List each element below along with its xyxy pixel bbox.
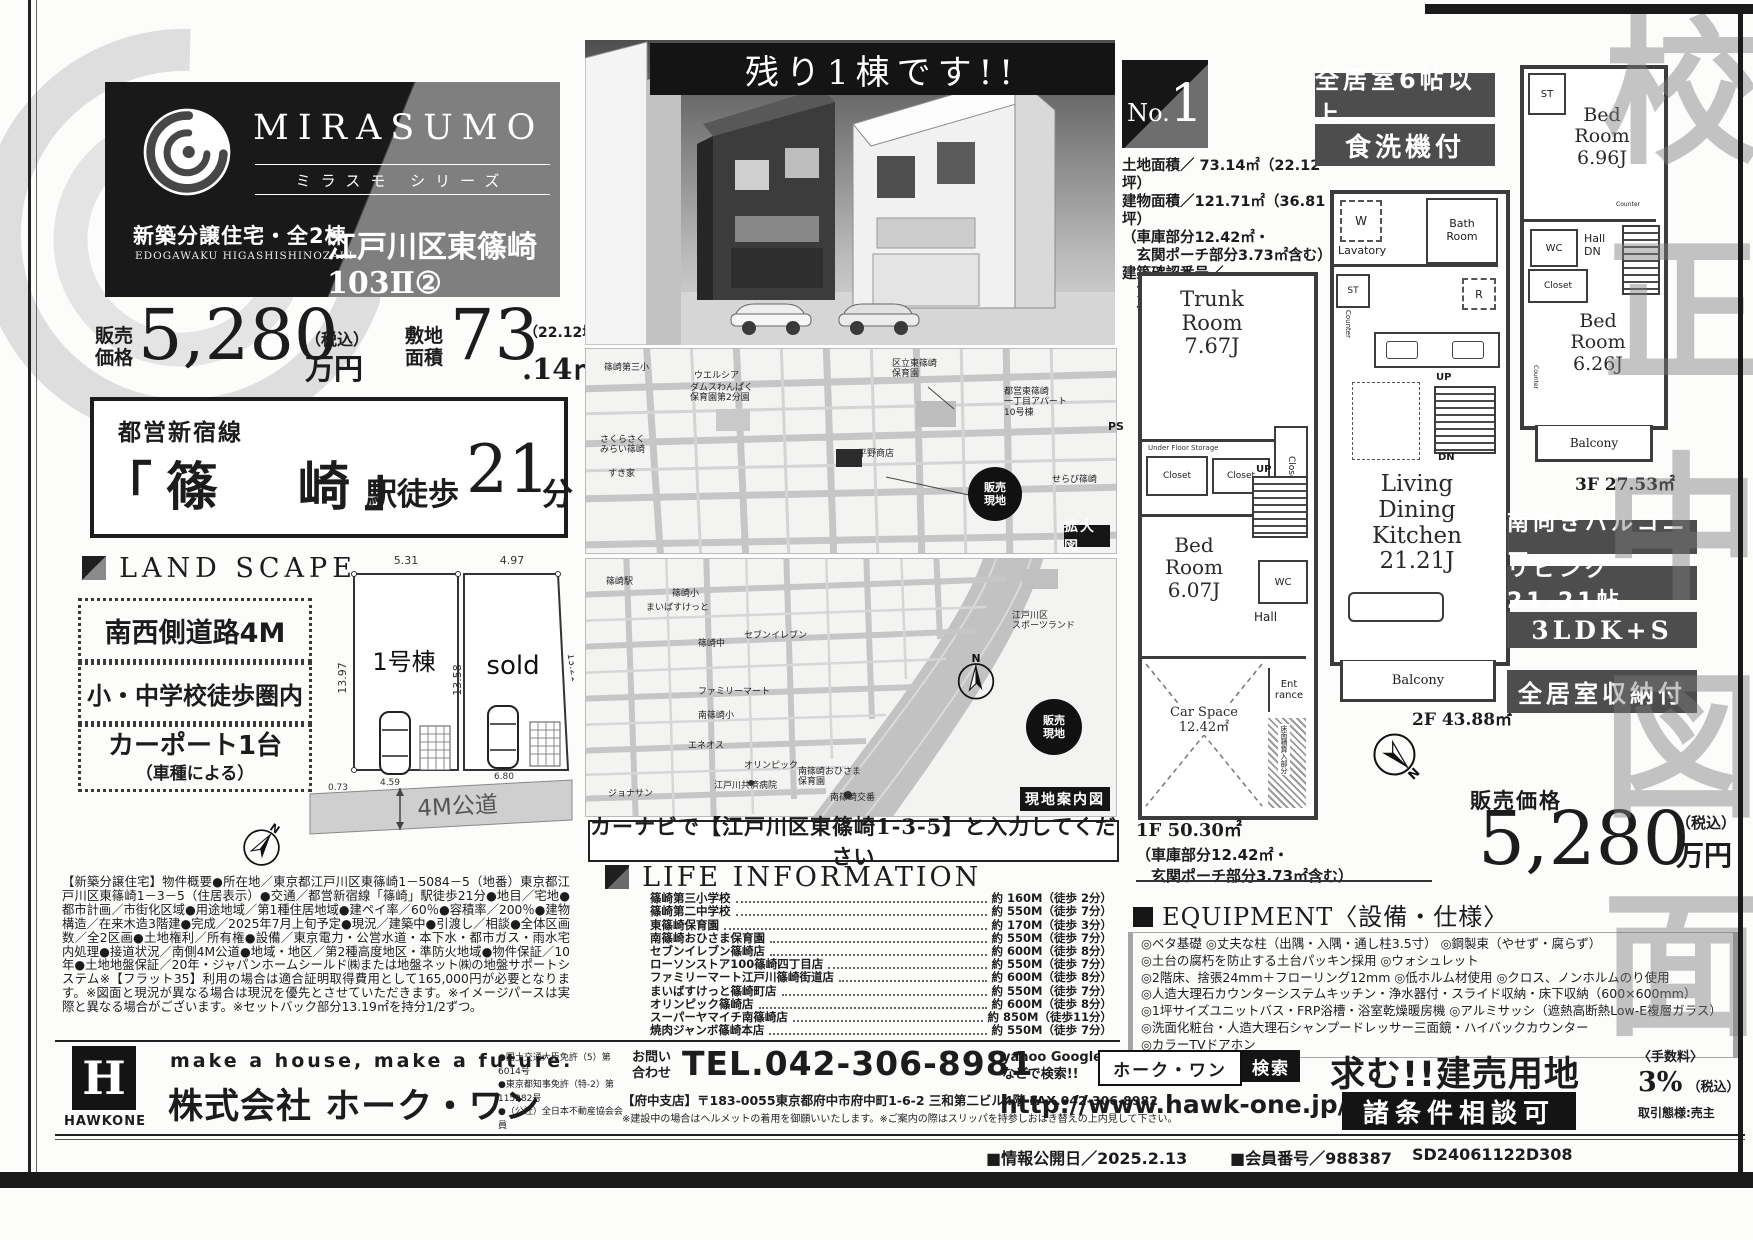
floor-plan-1f: Trunk Room 7.67J Under Floor Storage Clo… — [1138, 272, 1318, 820]
road-label: 4M公道 — [417, 792, 499, 822]
porch-hatch-2 — [530, 722, 560, 766]
compass-landscape: N — [228, 808, 300, 880]
label-hall-1f: Hall — [1254, 610, 1277, 624]
dotted-leader — [770, 941, 987, 943]
footer-tel: TEL.042-306-8981 — [682, 1044, 1034, 1083]
badge-storage: 全居室収納付 — [1507, 670, 1697, 713]
station-unit: 分 — [542, 469, 573, 514]
wc-1f: WC — [1258, 560, 1308, 604]
plot-dim-b3: 6.80 — [494, 772, 514, 782]
kitchen-stove — [1452, 341, 1484, 359]
feature-carport-label: カーポート1台 — [108, 733, 282, 759]
label-1f-area: 1F 50.30㎡ — [1136, 816, 1353, 842]
map-guide-label: 篠崎小 — [672, 589, 699, 599]
stairs-3f — [1622, 225, 1660, 295]
brand-panel: MIRASUMO ミラスモ シリーズ 新築分譲住宅・全2棟 EDOGAWAKU … — [105, 82, 560, 297]
map-guide-label: セブンイレブン — [744, 631, 807, 641]
page-edge-bottom — [0, 1172, 1753, 1188]
feature-carport-note: （車種による） — [136, 759, 255, 784]
dotted-leader — [839, 980, 987, 982]
divider-equipment — [1136, 880, 1432, 882]
feature-box-carport: カーポート1台 （車種による） — [78, 724, 312, 792]
page-edge-top-right — [1425, 4, 1753, 14]
floor-plan-2f: W Lavatory Bath Room ST Counter R UP DN … — [1330, 190, 1510, 666]
map-zoom-streets — [586, 349, 1116, 553]
lot2-label: sold — [486, 651, 539, 681]
wall — [1334, 264, 1498, 267]
life-title: LIFE INFORMATION — [642, 862, 981, 893]
map-zoom-label: 都営東篠崎 一丁目アパート 10号棟 — [1004, 387, 1067, 418]
fee-value-row: 3% （税込） — [1638, 1067, 1748, 1098]
plot-dim-right: 13.21 — [565, 653, 574, 683]
fridge-box: R — [1462, 278, 1496, 310]
page-edge-left-2 — [36, 0, 37, 1186]
station-minutes: 21 — [466, 437, 550, 503]
footer-contact-label: お問い 合わせ — [632, 1050, 671, 1083]
search-input-box: ホーク・ワン — [1098, 1050, 1242, 1086]
spec-line: 建物面積／121.71㎡（36.81坪） — [1122, 194, 1332, 230]
sale-price-unit: 万円 — [1676, 834, 1732, 874]
map-zoom-label: さくらさく みらい篠崎 — [600, 435, 645, 456]
license-line: ●東京都知事免許（特-2）第115282号 — [498, 1079, 628, 1106]
page-edge-left-1 — [28, 0, 31, 1186]
lot1-label: 1号棟 — [372, 648, 435, 676]
brand-rule-bottom — [255, 194, 550, 195]
sale-price-value: 5,280 — [1478, 802, 1690, 876]
map-guide: 篠崎駅 篠崎小 まいばすけっと 篠崎中 セブンイレブン ファミリーマート 南篠崎… — [585, 558, 1117, 817]
plot-dim-left: 13.97 — [336, 662, 349, 694]
label-counter-2f: Counter — [1344, 310, 1352, 338]
map-guide-label: まいばすけっと — [646, 603, 709, 613]
dotted-leader — [736, 914, 987, 916]
badge-3ldks: 3LDK+S — [1507, 612, 1697, 648]
dotted-leader — [769, 1033, 986, 1035]
kitchen-sink — [1386, 341, 1418, 359]
label-under-floor-storage: Under Floor Storage — [1148, 444, 1218, 452]
equipment-title: EQUIPMENT〈設備・仕様〉 — [1162, 903, 1508, 931]
map-guide-label: 江戸川共済病院 — [714, 781, 777, 791]
consult-badge: 諸条件相談可 — [1342, 1092, 1576, 1130]
map-zoom-label: 区立東篠崎 保育園 — [892, 359, 937, 380]
badge-living-size: リビング21.21帖 — [1507, 566, 1697, 600]
map-guide-label: 南篠崎小 — [698, 711, 734, 721]
label-lavatory: Lavatory — [1338, 244, 1386, 257]
room-car-space: Car Space 12.42㎡ — [1144, 706, 1264, 735]
svg-text:N: N — [971, 652, 980, 665]
equipment-item: ◎人造大理石カウンターシステムキッチン・浄水器付・スライド収納・床下収納（600… — [1141, 986, 1725, 1003]
search-button: 検索 — [1242, 1050, 1300, 1082]
map-zoom-label: 平野商店 — [858, 449, 894, 459]
feature-box-road: 南西側道路4M — [78, 598, 312, 662]
license-line: ●国土交通大臣免許（5）第6014号 — [498, 1052, 628, 1079]
station-walk: 駅徒歩 — [366, 469, 459, 514]
plot-dim-top1: 5.31 — [394, 554, 419, 567]
map-guide-site-mark: 販売 現地 — [1026, 699, 1082, 755]
bottom-rule-2 — [55, 1139, 1745, 1140]
room-entrance: Ent rance — [1268, 668, 1308, 712]
feature-box-school: 小・中学校徒歩圏内 — [78, 662, 312, 724]
room-bed2-3f: Bed Room 6.26J — [1546, 311, 1650, 375]
map-guide-label: 江戸川区 スポーツランド — [1012, 611, 1075, 632]
badge-dishwasher: 食洗機付 — [1315, 124, 1495, 166]
kitchen-counter — [1374, 332, 1500, 368]
brand-name: MIRASUMO — [253, 108, 553, 148]
map-guide-label: 篠崎中 — [698, 639, 725, 649]
compass-map: N — [954, 651, 998, 703]
life-item-name: 焼肉ジャンボ篠崎本店 — [650, 1022, 764, 1038]
dining-table — [1352, 382, 1420, 460]
car-top-view-2 — [488, 706, 518, 768]
fee-block: 〈手数料〉 3% （税込） 取引態様:売主 — [1638, 1046, 1748, 1121]
footer-company: 株式会社 ホーク・ワン — [168, 1078, 541, 1129]
balcony-2f: Balcony — [1340, 660, 1496, 702]
map-zoom-label: すき家 — [608, 469, 635, 479]
equipment-item: ◎1坪サイズユニットバス・FRP浴槽・浴室乾燥暖房機 ◎アルミサッシ（遮熱高断熱… — [1141, 1003, 1725, 1020]
plot-dim-mid: 13.58 — [451, 664, 464, 696]
equipment-item: ◎土台の腐朽を防止する土台パッキン採用 ◎ウォシュレット — [1141, 953, 1725, 970]
license-line: ●（公社）全日本不動産協会会員 — [498, 1106, 628, 1133]
map-zoom-label: 篠崎第三小 — [604, 363, 649, 373]
plot-dim-b2: 4.59 — [380, 778, 400, 788]
wall — [1524, 219, 1656, 222]
label-ps: PS — [1108, 420, 1124, 433]
map-guide-label: エネオス — [688, 741, 724, 751]
site-label: 敷地 面積 — [405, 326, 443, 370]
unit-number: No.1 — [1127, 74, 1203, 134]
balcony-3f: Balcony — [1535, 425, 1653, 462]
spec-line: （車庫部分12.42㎡・ — [1122, 230, 1332, 248]
map-guide-label: 南篠崎おひさま 保育園 — [798, 767, 861, 788]
svg-text:N: N — [267, 821, 282, 837]
unit-number-badge: No.1 — [1122, 60, 1208, 148]
badge-all-rooms-6j: 全居室6帖以上 — [1315, 73, 1495, 117]
dotted-leader — [736, 901, 987, 903]
floor1-area-block: 1F 50.30㎡ （車庫部分12.42㎡・ 玄関ポーチ部分3.73㎡含む） — [1136, 816, 1353, 886]
section-square-icon — [82, 556, 106, 580]
plot-diagram: 4M公道 5.31 4.97 13.97 13.58 13.21 1号棟 sol… — [308, 548, 574, 844]
label-3f-area: 3F 27.53㎡ — [1575, 470, 1675, 495]
map-zoom-label: せらび篠崎 — [1052, 475, 1097, 485]
sale-price-tax: （税込） — [1676, 812, 1736, 833]
equipment-box: ◎ベタ基礎 ◎丈夫な柱（出隅・入隅・通し柱3.5寸） ◎鋼製束（やせず・腐らず）… — [1128, 932, 1738, 1058]
map-zoom-label: ウエルシア — [694, 371, 739, 381]
washer-box: W — [1340, 200, 1382, 242]
sofa — [1348, 592, 1444, 622]
stairs-1f — [1252, 476, 1308, 538]
price-unit: 万円 — [305, 346, 363, 388]
dotted-leader — [782, 994, 987, 996]
closet-1: Closet — [1146, 456, 1208, 496]
footer-url: http://www.hawk-one.jp/ — [1000, 1090, 1347, 1119]
room-bed1-3f: Bed Room 6.96J — [1550, 105, 1654, 169]
life-header: LIFE INFORMATION — [605, 862, 981, 893]
feature-road-label: 南西側道路4M — [105, 611, 286, 650]
hawkone-logo: H — [72, 1046, 136, 1110]
brand-project: 江戸川区東篠崎103Ⅱ② — [327, 222, 560, 301]
dotted-leader — [759, 1007, 987, 1009]
map-guide-label: 南篠崎交番 — [830, 793, 875, 803]
floor-plan-3f: ST Bed Room 6.96J Counter WC Hall DN Clo… — [1520, 65, 1668, 430]
fee-label: 〈手数料〉 — [1638, 1046, 1748, 1065]
brand-rule-top — [255, 164, 550, 165]
label-1f-note1: （車庫部分12.42㎡・ — [1136, 844, 1353, 865]
dotted-leader — [828, 967, 986, 969]
footer-divider — [55, 1040, 1120, 1042]
remaining-banner-text: 残り1棟です!! — [745, 45, 1020, 94]
plot-dim-b1: 0.73 — [328, 783, 348, 793]
wc-3f: WC — [1530, 229, 1578, 267]
life-list: 篠崎第三小学校約 160M（徒歩 2分） 篠崎第二中学校約 550M（徒歩 7分… — [650, 893, 1112, 1038]
footer-licenses: ●国土交通大臣免許（5）第6014号 ●東京都知事免許（特-2）第115282号… — [498, 1052, 628, 1133]
label-counter-3f-b: Counter — [1532, 365, 1539, 389]
plot-dim-top2: 4.97 — [500, 554, 525, 567]
map-guide-label: ファミリーマート — [698, 687, 770, 697]
search-hint: yahoo Google などで検索!! — [1002, 1050, 1102, 1084]
map-guide-label: ジョナサン — [608, 789, 653, 799]
brand-spiral-logo — [135, 100, 239, 204]
equipment-header: EQUIPMENT〈設備・仕様〉 — [1133, 897, 1508, 932]
wanted-land: 求む!!建売用地 — [1330, 1046, 1580, 1097]
map-zoom-label: ダムスわんぱく 保育園第2分園 — [690, 383, 753, 404]
spec-line: 玄関ポーチ部分3.73㎡含む） — [1122, 248, 1332, 266]
porch-hatch-1 — [420, 726, 450, 770]
label-counter-3f-a: Counter — [1616, 201, 1640, 208]
life-item: 焼肉ジャンボ篠崎本店約 550M（徒歩 7分） — [650, 1025, 1112, 1038]
brand-category: 新築分譲住宅・全2棟 — [133, 220, 347, 250]
bottom-rule-1 — [55, 1134, 1745, 1136]
map-guide-label: オリンピック — [744, 761, 798, 771]
car-top-view-1 — [380, 712, 410, 774]
label-1f-note2: 玄関ポーチ部分3.73㎡含む） — [1136, 865, 1353, 886]
room-ldk: Living Dining Kitchen 21.21J — [1342, 472, 1492, 575]
section-square-icon — [605, 865, 629, 889]
member-number: ■会員番号／988387 — [1230, 1145, 1392, 1169]
map-zoom-site-mark: 販売 現地 — [968, 467, 1022, 521]
map-zoom-tag: 拡大図 — [1064, 525, 1110, 547]
fee-value: 3% — [1638, 1067, 1682, 1098]
page-edge-right — [1738, 4, 1743, 1186]
brand-category-en: EDOGAWAKU HIGASHISHINOZAKI — [135, 250, 354, 262]
site-decimal-value: .14 — [522, 352, 572, 386]
price-label: 販売 価格 — [95, 326, 133, 370]
wall — [1142, 656, 1306, 659]
section-square-icon — [1133, 907, 1153, 927]
hawkone-logo-name: HAWKONE — [64, 1114, 144, 1129]
fee-tax: （税込） — [1688, 1080, 1740, 1095]
property-overview: 【新築分譲住宅】物件概要●所在地／東京都江戸川区東篠崎1－5084－5（地番）東… — [62, 876, 570, 958]
remaining-banner: 残り1棟です!! — [650, 43, 1115, 95]
room-bath: Bath Room — [1426, 198, 1498, 264]
map-zoom: 篠崎第三小 ウエルシア ダムスわんぱく 保育園第2分園 さくらさく みらい篠崎 … — [585, 348, 1117, 554]
equipment-item: ◎洗面化粧台・人造大理石シャンプードレッサー三面鏡・ハイバックカウンター — [1141, 1020, 1725, 1037]
published-date: ■情報公開日／2025.2.13 — [986, 1145, 1187, 1169]
dotted-leader — [793, 1020, 983, 1022]
station-box: 都営新宿線 「篠 崎」 駅徒歩 21 分 — [90, 397, 568, 538]
brand-series: ミラスモ シリーズ — [255, 170, 550, 191]
label-up-2f: UP — [1436, 372, 1451, 383]
st-box-2f: ST — [1336, 274, 1370, 308]
compass-plan: N — [1358, 718, 1437, 797]
badge-south-balcony: 南向きバルコニー — [1507, 520, 1697, 554]
document-code: SD24061122D308 — [1412, 1145, 1573, 1164]
map-guide-tag: 現地案内図 — [1020, 787, 1110, 811]
carnav-strip: カーナビで【江戸川区東篠崎1-3-5】と入力してください — [588, 820, 1119, 862]
map-guide-label: 篠崎駅 — [606, 577, 633, 587]
closet-3f: Closet — [1528, 269, 1588, 303]
hawkone-logo-letter: H — [82, 1051, 125, 1105]
spec-line: 土地面積／ 73.14㎡（22.12坪） — [1122, 158, 1332, 194]
label-floor-area-included: 床面積算入部分 — [1278, 724, 1290, 775]
life-item-dist: 約 550M（徒歩 7分） — [992, 1022, 1112, 1038]
equipment-item: ◎ベタ基礎 ◎丈夫な柱（出隅・入隅・通し柱3.5寸） ◎鋼製束（やせず・腐らず） — [1141, 936, 1725, 953]
label-2f-area: 2F 43.88㎡ — [1412, 705, 1512, 730]
station-line: 都営新宿線 — [118, 413, 243, 447]
search-input-text: ホーク・ワン — [1113, 1056, 1227, 1081]
label-up-1f: UP — [1256, 464, 1271, 475]
room-bed-1f: Bed Room 6.07J — [1142, 534, 1246, 601]
flyer-page: MIRASUMO ミラスモ シリーズ 新築分譲住宅・全2棟 EDOGAWAKU … — [0, 0, 1753, 1240]
label-dn-2f: DN — [1438, 452, 1455, 463]
stairs-2f — [1434, 386, 1496, 454]
label-hall-3f: Hall DN — [1584, 233, 1605, 258]
feature-school-label: 小・中学校徒歩圏内 — [87, 676, 303, 711]
deal-type: 取引態様:売主 — [1638, 1104, 1748, 1121]
room-trunk: Trunk Room 7.67J — [1142, 288, 1282, 359]
equipment-item: ◎2階床、捨張24mm＋フローリング12mm ◎低ホルム材使用 ◎クロス、ノンホ… — [1141, 970, 1725, 987]
